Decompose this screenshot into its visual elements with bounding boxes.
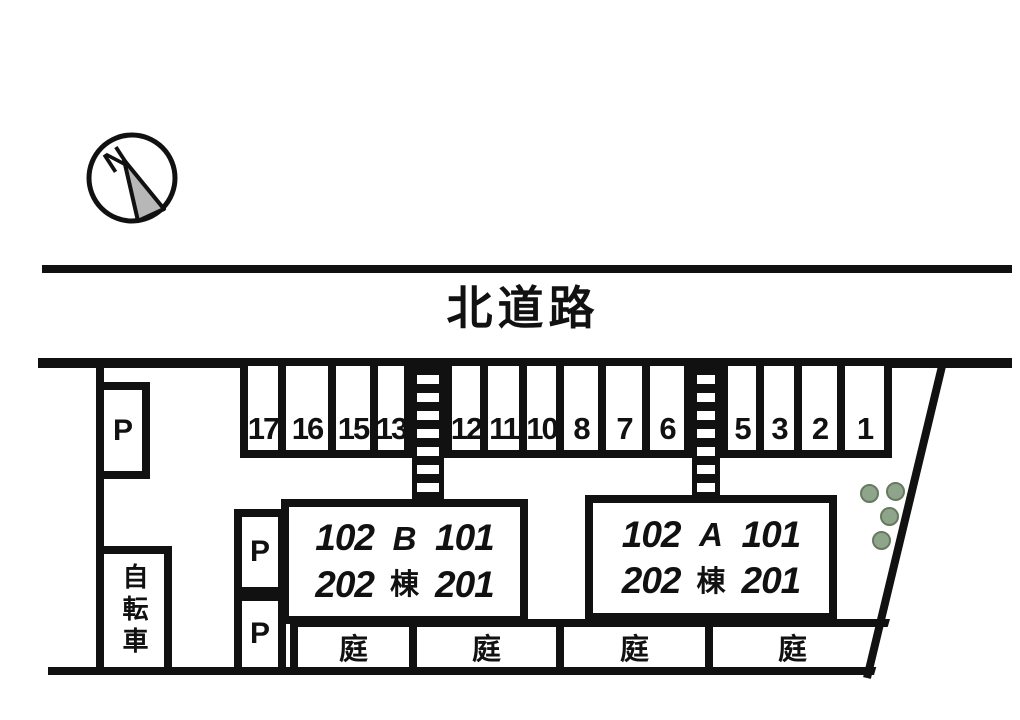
p-label: P	[250, 617, 270, 651]
building-b-units: 102 B 101 202 棟 201	[315, 515, 493, 608]
parking-space: 1	[837, 366, 892, 458]
building-suffix: 棟	[696, 568, 725, 597]
unit-label: 202	[315, 562, 374, 608]
garden-label: 庭	[778, 626, 807, 668]
building-letter: B	[393, 522, 417, 555]
parking-space: 6	[642, 366, 692, 458]
tree-icon	[880, 507, 899, 526]
p-label: P	[250, 535, 270, 569]
walkway-crosswalk-strip	[412, 366, 444, 500]
bicycle-parking-box: 自転車	[96, 546, 172, 675]
garden-label: 庭	[339, 626, 368, 668]
road-north-edge-line	[42, 265, 1012, 273]
unit-label: 102	[622, 512, 681, 558]
unit-label: 101	[435, 515, 494, 561]
bicycle-label: 自転車	[121, 563, 147, 659]
building-suffix: 棟	[390, 571, 419, 600]
walkway-crosswalk-strip	[692, 366, 720, 500]
garden-box: 庭	[556, 619, 713, 675]
site-plan: N 北道路 17 16 15 13 12 11 10 8 7 6 5 3 2 1…	[0, 0, 1020, 720]
garden-box: 庭	[409, 619, 564, 675]
unit-label: 101	[742, 512, 801, 558]
tree-icon	[886, 482, 905, 501]
unit-label: 201	[435, 562, 494, 608]
unit-label: 102	[315, 515, 374, 561]
garden-label: 庭	[472, 626, 501, 668]
parking-lot-p-left: P	[96, 382, 150, 479]
p-label: P	[113, 414, 133, 448]
parking-space-number: 1	[835, 411, 894, 447]
parking-space-number: 6	[640, 411, 694, 447]
compass-north-icon: N	[82, 130, 182, 230]
building-a: 102 A 101 202 棟 201	[585, 495, 837, 621]
garden-box: 庭	[290, 619, 417, 675]
building-b: 102 B 101 202 棟 201	[281, 499, 528, 624]
parking-space: 13	[370, 366, 412, 458]
tree-icon	[860, 484, 879, 503]
unit-label: 202	[622, 558, 681, 604]
parking-space-number: 13	[368, 411, 414, 447]
garden-box: 庭	[705, 619, 890, 675]
building-letter: A	[699, 518, 723, 551]
compass-arrow	[124, 160, 164, 221]
road-label: 北道路	[373, 281, 673, 335]
parking-lot-p-mid-2: P	[234, 593, 286, 675]
parking-lot-p-mid-1: P	[234, 509, 286, 595]
tree-icon	[872, 531, 891, 550]
garden-label: 庭	[620, 626, 649, 668]
building-a-units: 102 A 101 202 棟 201	[622, 512, 800, 605]
unit-label: 201	[742, 558, 801, 604]
